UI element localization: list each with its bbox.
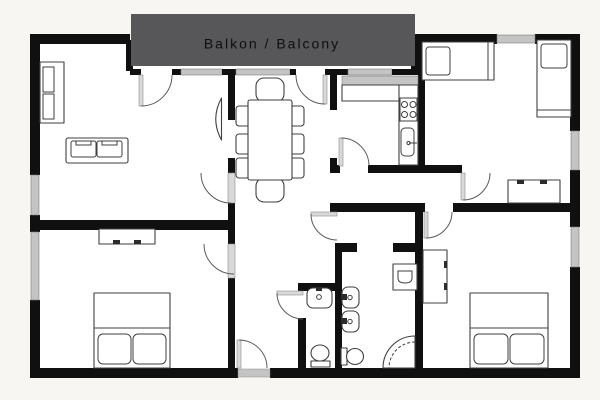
door-leaf [139, 75, 143, 106]
window-icon [571, 131, 579, 170]
wall-segment [30, 368, 238, 378]
wall-segment [570, 267, 580, 378]
wall-segment [453, 203, 580, 212]
door-leaf [228, 244, 235, 278]
faucet-icon [316, 287, 322, 291]
wall-segment [228, 69, 235, 120]
window-icon [571, 227, 579, 267]
window-icon [31, 232, 39, 300]
dresser-detail [113, 240, 120, 244]
wall-segment [30, 215, 40, 232]
wall-segment [130, 69, 141, 75]
balcony-wall [130, 69, 418, 75]
wall-segment [172, 69, 181, 75]
desk-icon [508, 180, 560, 203]
wall-segment [290, 69, 296, 75]
entrance-threshold [238, 369, 270, 377]
wall-segment [298, 318, 306, 368]
double-bed-icon [470, 293, 548, 368]
window-icon [181, 69, 222, 75]
window-icon [497, 35, 535, 43]
wall-segment [330, 203, 425, 212]
door-leaf [339, 138, 343, 166]
wall-segment [342, 243, 357, 252]
wardrobe-handle [444, 283, 447, 290]
wall-segment [330, 69, 337, 110]
door-leaf [277, 291, 303, 295]
desk-detail [540, 180, 547, 184]
balcony-banner: Balkon / Balcony [131, 14, 415, 66]
double-bed-icon [94, 293, 170, 368]
wall-segment [228, 278, 235, 368]
wall-segment [228, 158, 235, 173]
wardrobe-icon [423, 250, 447, 303]
single-bed-icon [422, 42, 494, 80]
wall-segment [393, 243, 423, 252]
wall-segment [270, 368, 580, 378]
wall-segment [392, 69, 418, 75]
sofa [66, 138, 128, 163]
wall-segment [30, 300, 40, 378]
living-room-wardrobe [40, 62, 64, 123]
toilet-tank [311, 361, 330, 367]
floor-plan-canvas: Balkon / Balcony [0, 0, 600, 400]
dresser-detail [134, 240, 141, 244]
kitchen-backsplash [342, 76, 418, 85]
window-icon [236, 69, 290, 75]
faucet-icon [342, 318, 347, 324]
wall-segment [368, 165, 462, 173]
door-leaf [323, 75, 327, 104]
chair-icon [256, 78, 284, 102]
washing-machine-icon [393, 264, 417, 290]
balcony-label: Balkon / Balcony [204, 36, 340, 52]
single-bed-icon [537, 40, 571, 117]
faucet-icon [342, 294, 347, 300]
dining-table-icon [248, 100, 292, 180]
wall-segment [228, 203, 235, 244]
door-leaf [424, 212, 428, 238]
wall-segment [30, 34, 40, 175]
toilet-icon [347, 349, 364, 365]
door-leaf [228, 173, 235, 203]
wall-segment [330, 165, 340, 173]
toilet-icon [311, 345, 329, 361]
wardrobe-handle [444, 261, 447, 268]
dresser-icon [99, 229, 155, 244]
floor-plan: Balkon / Balcony [0, 0, 600, 400]
desk-detail [517, 180, 524, 184]
wall-segment [570, 170, 580, 227]
door-leaf [461, 173, 465, 200]
door-leaf [237, 340, 241, 368]
wall-segment [30, 34, 130, 44]
kitchen-counter [399, 85, 418, 165]
window-icon [31, 175, 39, 215]
chair-icon [256, 178, 284, 202]
door-leaf [311, 212, 337, 216]
window-icon [348, 69, 392, 75]
